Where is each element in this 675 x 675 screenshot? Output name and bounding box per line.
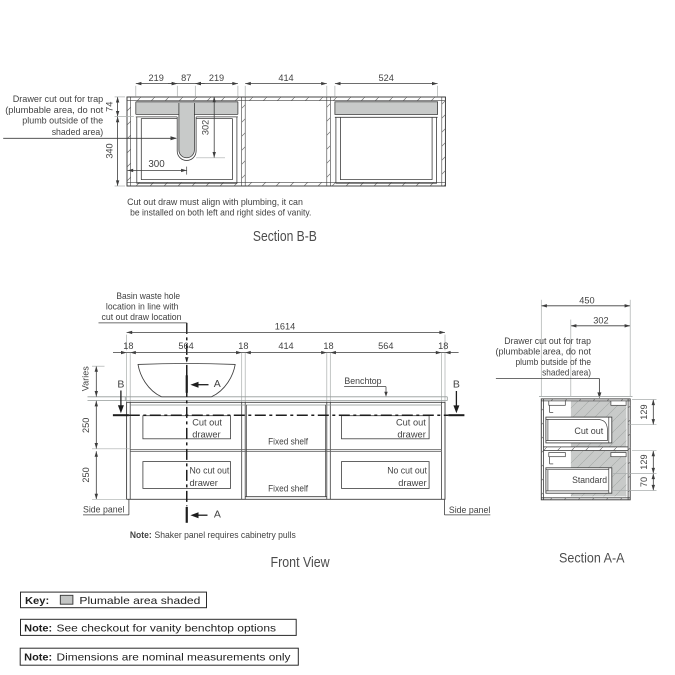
svg-text:Dimensions are nominal measure: Dimensions are nominal measurements only: [57, 652, 292, 664]
svg-text:Fixed shelf: Fixed shelf: [268, 484, 308, 494]
svg-text:Shaker panel requires cabinetr: Shaker panel requires cabinetry pulls: [155, 530, 297, 541]
svg-text:Note:: Note:: [24, 622, 52, 634]
svg-text:Side panel: Side panel: [83, 505, 124, 515]
svg-text:drawer: drawer: [190, 478, 218, 488]
svg-text:Fixed shelf: Fixed shelf: [268, 437, 308, 447]
svg-text:Key:: Key:: [25, 595, 49, 607]
svg-text:Cut out: Cut out: [192, 418, 222, 428]
svg-text:Basin waste hole: Basin waste hole: [116, 291, 180, 302]
svg-text:74: 74: [104, 102, 114, 112]
svg-text:250: 250: [81, 467, 91, 482]
svg-text:414: 414: [278, 341, 293, 351]
svg-text:Plumable area shaded: Plumable area shaded: [79, 595, 200, 607]
svg-text:564: 564: [378, 341, 393, 351]
svg-text:be installed on both left and: be installed on both left and right side…: [130, 208, 311, 219]
svg-text:Note:: Note:: [24, 652, 52, 664]
svg-text:See checkout for vanity bencht: See checkout for vanity benchtop options: [57, 622, 277, 634]
svg-text:Note:: Note:: [130, 530, 152, 541]
svg-text:Drawer cut out for trap: Drawer cut out for trap: [13, 94, 104, 105]
svg-text:plumb outside of the: plumb outside of the: [22, 116, 103, 127]
svg-text:(plumbable area, do not: (plumbable area, do not: [5, 105, 103, 116]
svg-text:cut out draw location: cut out draw location: [102, 312, 182, 323]
svg-text:129: 129: [639, 454, 649, 469]
svg-text:450: 450: [579, 295, 594, 305]
svg-text:No cut out: No cut out: [387, 466, 427, 476]
svg-text:18: 18: [123, 341, 133, 351]
svg-text:Cut out: Cut out: [574, 426, 603, 436]
svg-text:plumb outside of the: plumb outside of the: [516, 357, 592, 368]
svg-text:shaded area): shaded area): [52, 127, 104, 138]
svg-text:Section B-B: Section B-B: [253, 229, 317, 245]
svg-text:Cut out: Cut out: [396, 418, 426, 428]
svg-text:Benchtop: Benchtop: [344, 376, 381, 387]
svg-text:87: 87: [181, 73, 191, 83]
svg-text:Drawer cut out for trap: Drawer cut out for trap: [504, 336, 591, 347]
svg-text:1614: 1614: [275, 322, 295, 332]
svg-text:Varies: Varies: [81, 366, 91, 391]
svg-text:Front View: Front View: [271, 555, 331, 571]
svg-text:Side panel: Side panel: [449, 505, 490, 515]
svg-text:A: A: [214, 378, 221, 390]
svg-text:18: 18: [323, 341, 333, 351]
svg-text:18: 18: [438, 341, 448, 351]
svg-text:shaded area): shaded area): [542, 368, 591, 379]
svg-text:219: 219: [149, 73, 164, 83]
svg-text:302: 302: [201, 120, 211, 135]
svg-text:(plumbable area, do not: (plumbable area, do not: [496, 347, 592, 358]
svg-text:129: 129: [639, 404, 649, 419]
svg-text:70: 70: [639, 477, 649, 487]
svg-text:B: B: [117, 378, 124, 390]
svg-text:564: 564: [178, 341, 193, 351]
svg-text:300: 300: [148, 159, 165, 170]
svg-text:drawer: drawer: [398, 478, 426, 488]
svg-text:No cut out: No cut out: [190, 466, 230, 476]
svg-text:Section A-A: Section A-A: [559, 550, 625, 565]
svg-text:524: 524: [379, 73, 394, 83]
svg-text:Standard: Standard: [572, 475, 607, 485]
svg-text:drawer: drawer: [397, 430, 425, 440]
svg-text:414: 414: [278, 73, 293, 83]
svg-text:340: 340: [104, 143, 114, 158]
svg-text:302: 302: [593, 315, 608, 325]
svg-text:219: 219: [209, 73, 224, 83]
svg-text:18: 18: [238, 341, 248, 351]
svg-text:A: A: [214, 508, 221, 520]
svg-text:B: B: [453, 379, 460, 391]
svg-text:Cut out draw must align with p: Cut out draw must align with plumbing, i…: [127, 197, 303, 208]
svg-text:location in line with: location in line with: [106, 301, 179, 312]
svg-text:drawer: drawer: [192, 430, 220, 440]
svg-text:250: 250: [81, 418, 91, 433]
